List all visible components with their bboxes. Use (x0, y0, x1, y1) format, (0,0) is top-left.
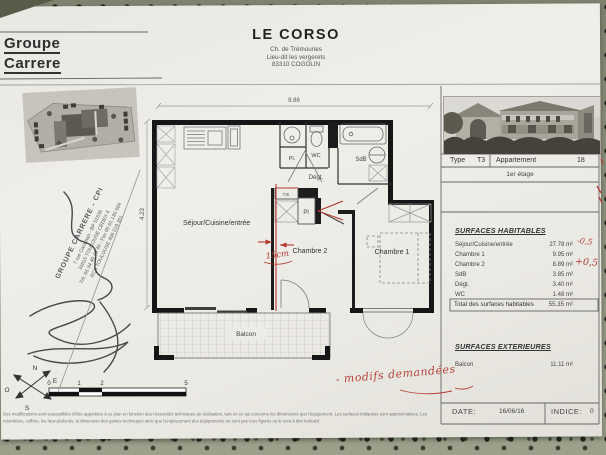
disclaimer-line2: retombées, coffres, les faux-plafonds, l… (3, 420, 440, 424)
hab-row-value: 3.85 m² (505, 272, 573, 278)
room-label-pl-dot: Pl. (289, 156, 296, 162)
photo-of-floor-plan-document: 9.86 4.23 (0, 0, 606, 455)
red-note-modifs: - modifs demandées (335, 363, 456, 386)
type-value: T3 (477, 157, 485, 164)
hab-row-value: 27.78 m² (505, 242, 573, 248)
hab-row-label: WC (455, 292, 465, 298)
sliding-door-panel-1 (185, 307, 216, 310)
dim-width-label: 9.86 (288, 98, 300, 104)
hab-row-label: Chambre 2 (455, 262, 485, 268)
room-label-sejour: Séjour/Cuisine/entrée (183, 220, 250, 227)
compass-o: O (4, 387, 9, 394)
hab-row-value: 9.95 m² (505, 252, 573, 258)
room-label-chambre2: Chambre 2 (293, 248, 328, 255)
room-label-pl: Pl (303, 210, 308, 216)
compass-rose (14, 371, 51, 399)
scale-tick-5: 5 (184, 381, 188, 387)
scale-tick-0: 0 (47, 381, 51, 387)
address-line3: 83310 COGOLIN (216, 62, 376, 68)
room-label-degt: Dégt. (309, 175, 324, 181)
company-stamp: GROUPE CARRERE - CPI 7 rue Caraman - BP … (55, 186, 132, 293)
indice-label: INDICE: (551, 408, 582, 416)
ext-row-value: 11.11 m² (505, 362, 573, 368)
logo-carrere: Carrere (4, 56, 61, 74)
interior-wall-blocks (271, 122, 355, 310)
scale-tick-1: 1 (77, 381, 81, 387)
surfaces-exterieures-title: SURFACES EXTERIEURES (455, 343, 551, 350)
red-note-15cm: 15cm (265, 249, 290, 262)
project-title: LE CORSO (216, 28, 376, 43)
room-label-sdb: SdB (355, 157, 366, 163)
site-plan-thumbnail (22, 87, 140, 163)
scale-tick-2: 2 (100, 381, 104, 387)
address-line1: Ch. de Trémouries (216, 47, 376, 53)
date-label: DATE: (452, 408, 476, 416)
logo-groupe: Groupe (4, 36, 60, 54)
bed-outline (367, 233, 430, 283)
kitchen-sink-unit (184, 126, 240, 149)
hab-row-label: Dégt. (455, 282, 469, 288)
ext-row-label: Balcon (455, 362, 473, 368)
hab-row-value: 8.89 m² (505, 262, 573, 268)
site-plan-graphic (22, 87, 140, 163)
red-note-minus: -0,5 (577, 237, 593, 247)
surfaces-habitables-title: SURFACES HABITABLES (455, 227, 546, 234)
compass-n: N (33, 365, 38, 372)
address-line2: Lieu-dit les vergerets (216, 55, 376, 61)
red-note-plus: +0,5 (575, 257, 599, 268)
door-swings (281, 151, 413, 338)
washbasin-icon (284, 127, 300, 143)
kitchen-cabinets-hatched (157, 126, 175, 188)
hab-row-label: SdB (455, 272, 466, 278)
building-photo (443, 96, 601, 155)
hab-row-label: Chambre 1 (455, 252, 485, 258)
room-label-chambre1: Chambre 1 (375, 249, 410, 256)
type-label: Type (450, 157, 465, 164)
date-value: 16/06/16 (499, 409, 524, 416)
hab-row-value: 1.48 m² (505, 292, 573, 298)
room-label-wc: WC (311, 153, 320, 159)
scale-bar (49, 388, 186, 396)
compass-s: S (25, 405, 30, 412)
dim-height-label: 4.23 (140, 208, 146, 220)
floor-label: 1er étage (441, 172, 599, 179)
apartment-label: Appartement (496, 157, 536, 164)
apartment-value: 18 (577, 157, 585, 164)
room-label-te: T.E (283, 192, 290, 198)
total-value: 55.35 m² (505, 302, 573, 308)
disclaimer-line1: Des modifications sont susceptibles d'êt… (3, 413, 440, 417)
compass-e: E (53, 378, 58, 385)
building-photo-graphic (444, 97, 600, 154)
hab-row-value: 3.40 m² (505, 282, 573, 288)
indice-value: 0 (590, 409, 594, 416)
room-label-balcon: Balcon (236, 331, 256, 338)
